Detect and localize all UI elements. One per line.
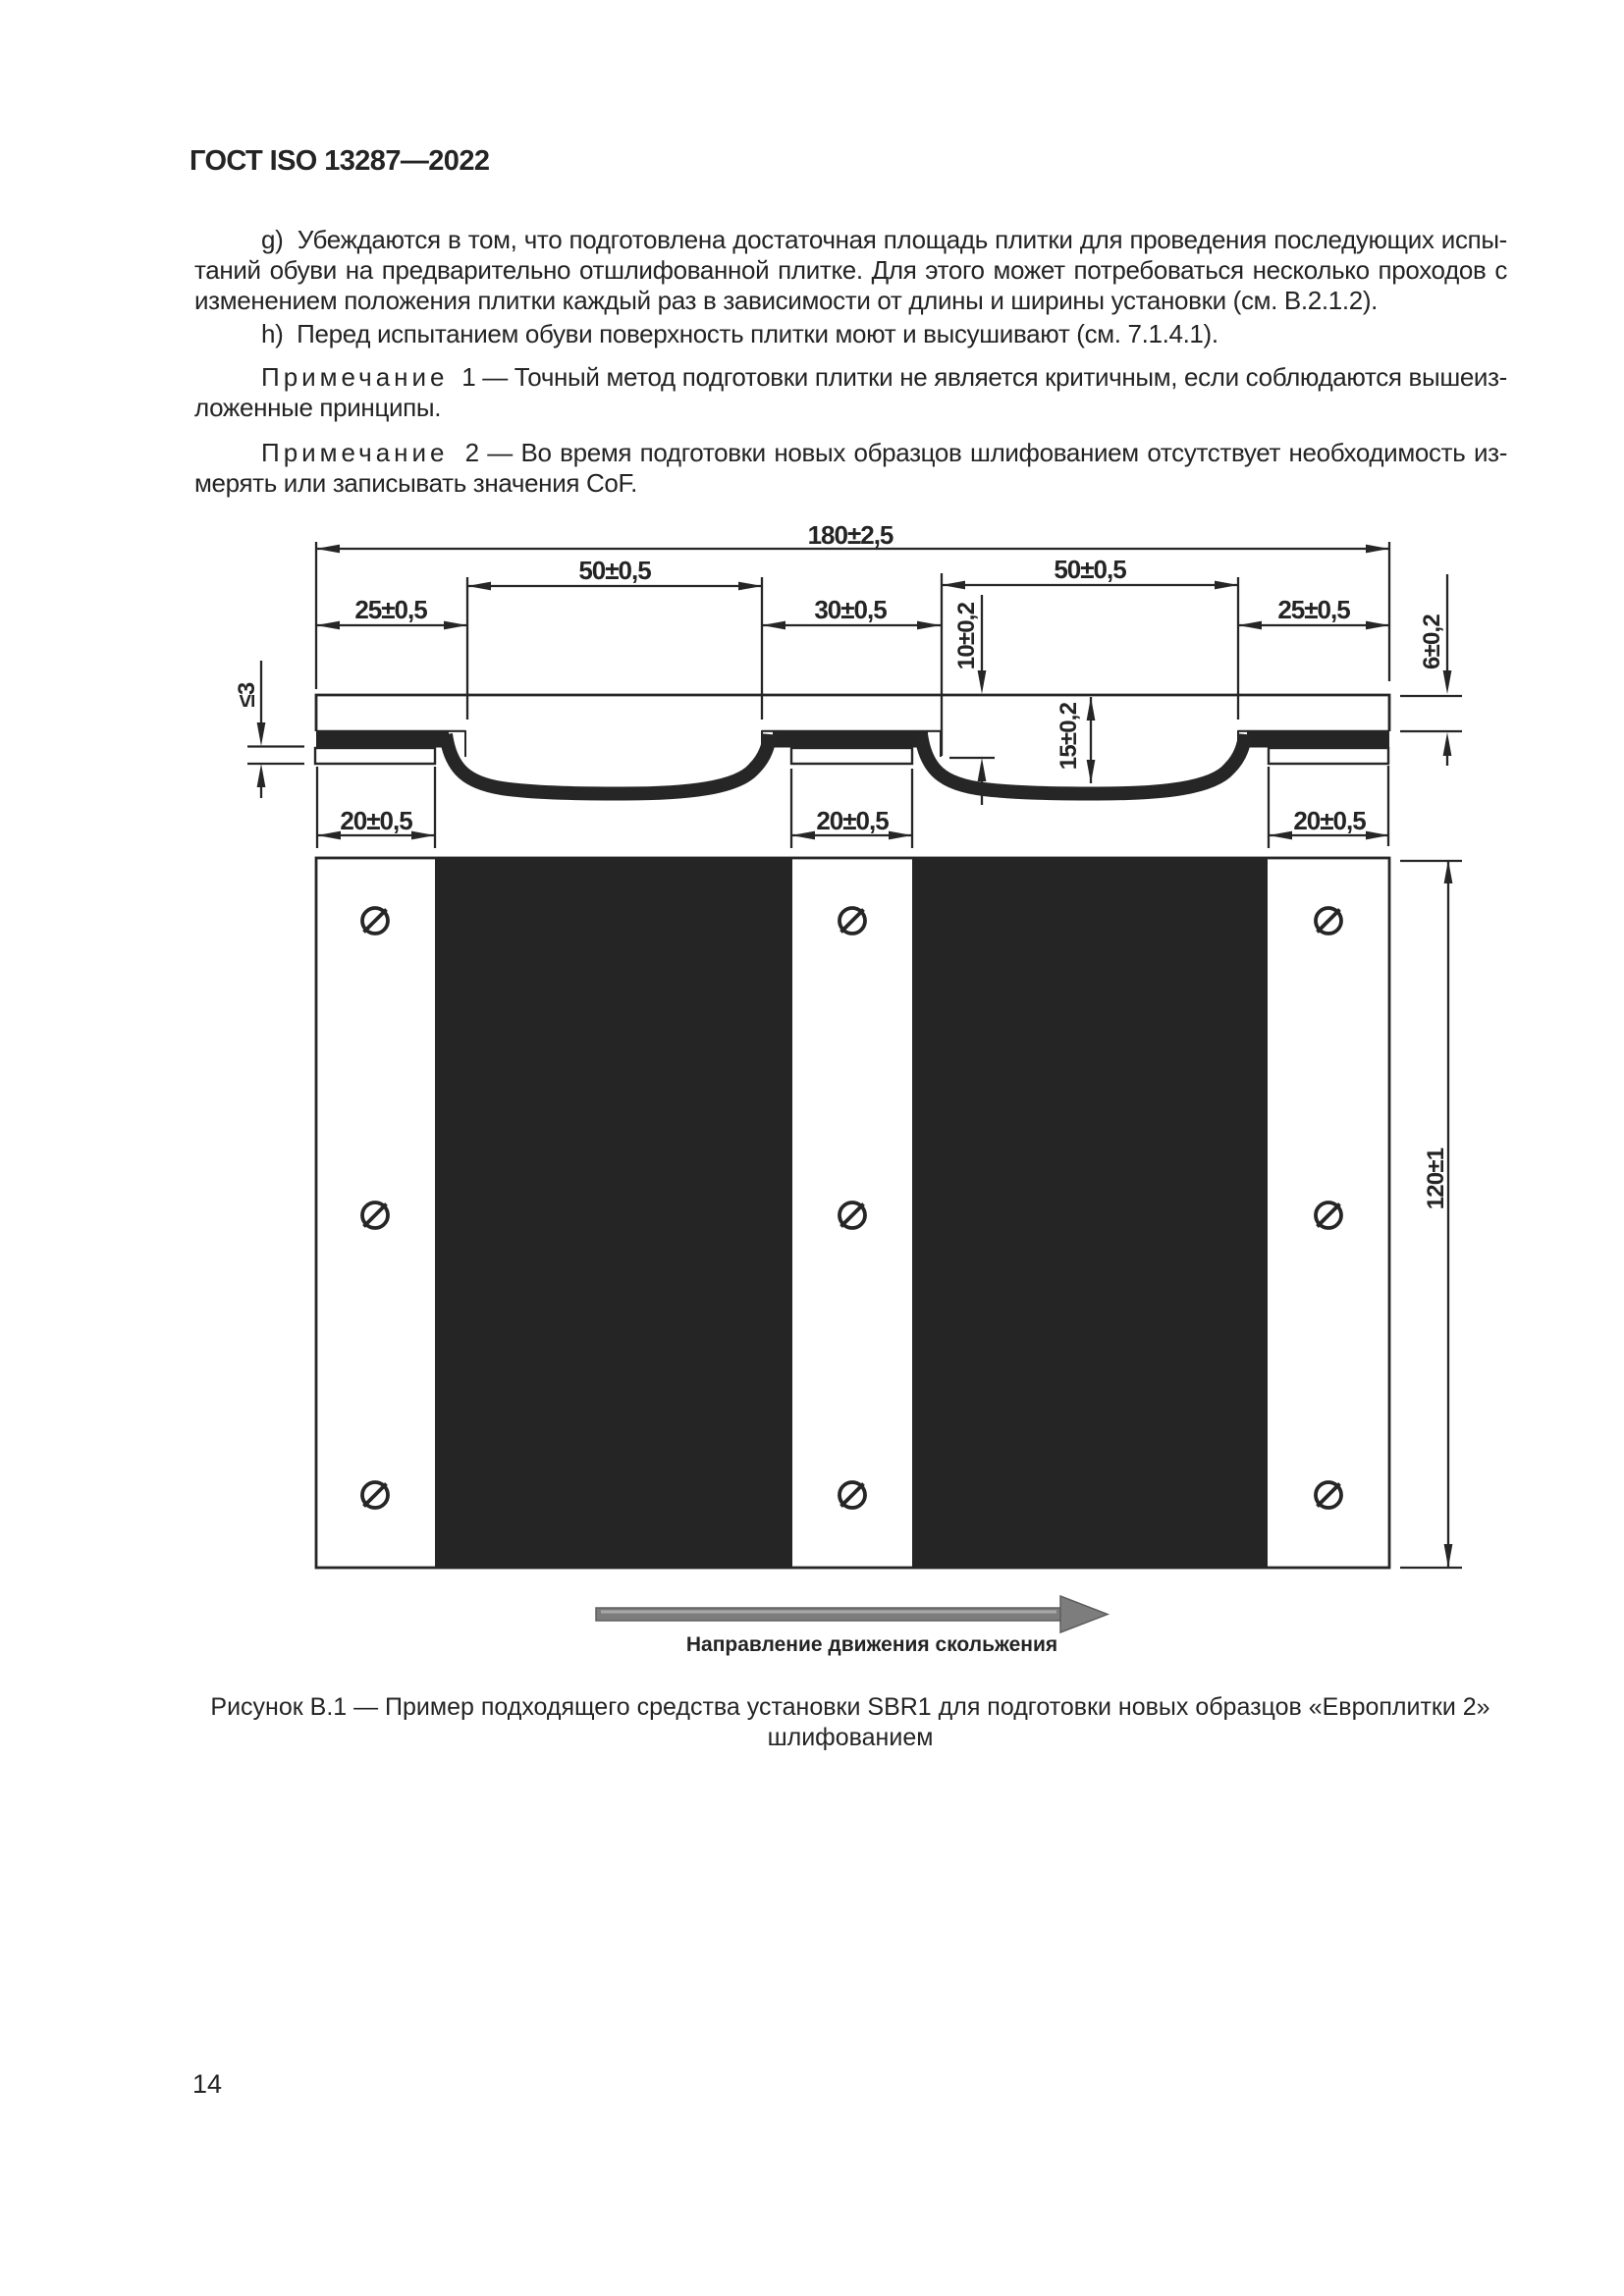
- svg-text:20±0,5: 20±0,5: [816, 806, 889, 835]
- svg-text:6±0,2: 6±0,2: [1419, 614, 1445, 669]
- svg-text:10±0,2: 10±0,2: [953, 602, 980, 669]
- svg-text:25±0,5: 25±0,5: [354, 595, 427, 624]
- svg-text:20±0,5: 20±0,5: [340, 806, 412, 835]
- svg-text:25±0,5: 25±0,5: [1277, 595, 1350, 624]
- svg-text:120±1: 120±1: [1423, 1148, 1449, 1209]
- svg-text:≤3: ≤3: [234, 682, 260, 707]
- svg-text:30±0,5: 30±0,5: [814, 595, 887, 624]
- svg-text:20±0,5: 20±0,5: [1293, 806, 1366, 835]
- svg-text:180±2,5: 180±2,5: [808, 520, 893, 550]
- svg-text:50±0,5: 50±0,5: [1054, 555, 1126, 584]
- svg-text:15±0,2: 15±0,2: [1056, 702, 1082, 770]
- svg-text:50±0,5: 50±0,5: [578, 556, 651, 585]
